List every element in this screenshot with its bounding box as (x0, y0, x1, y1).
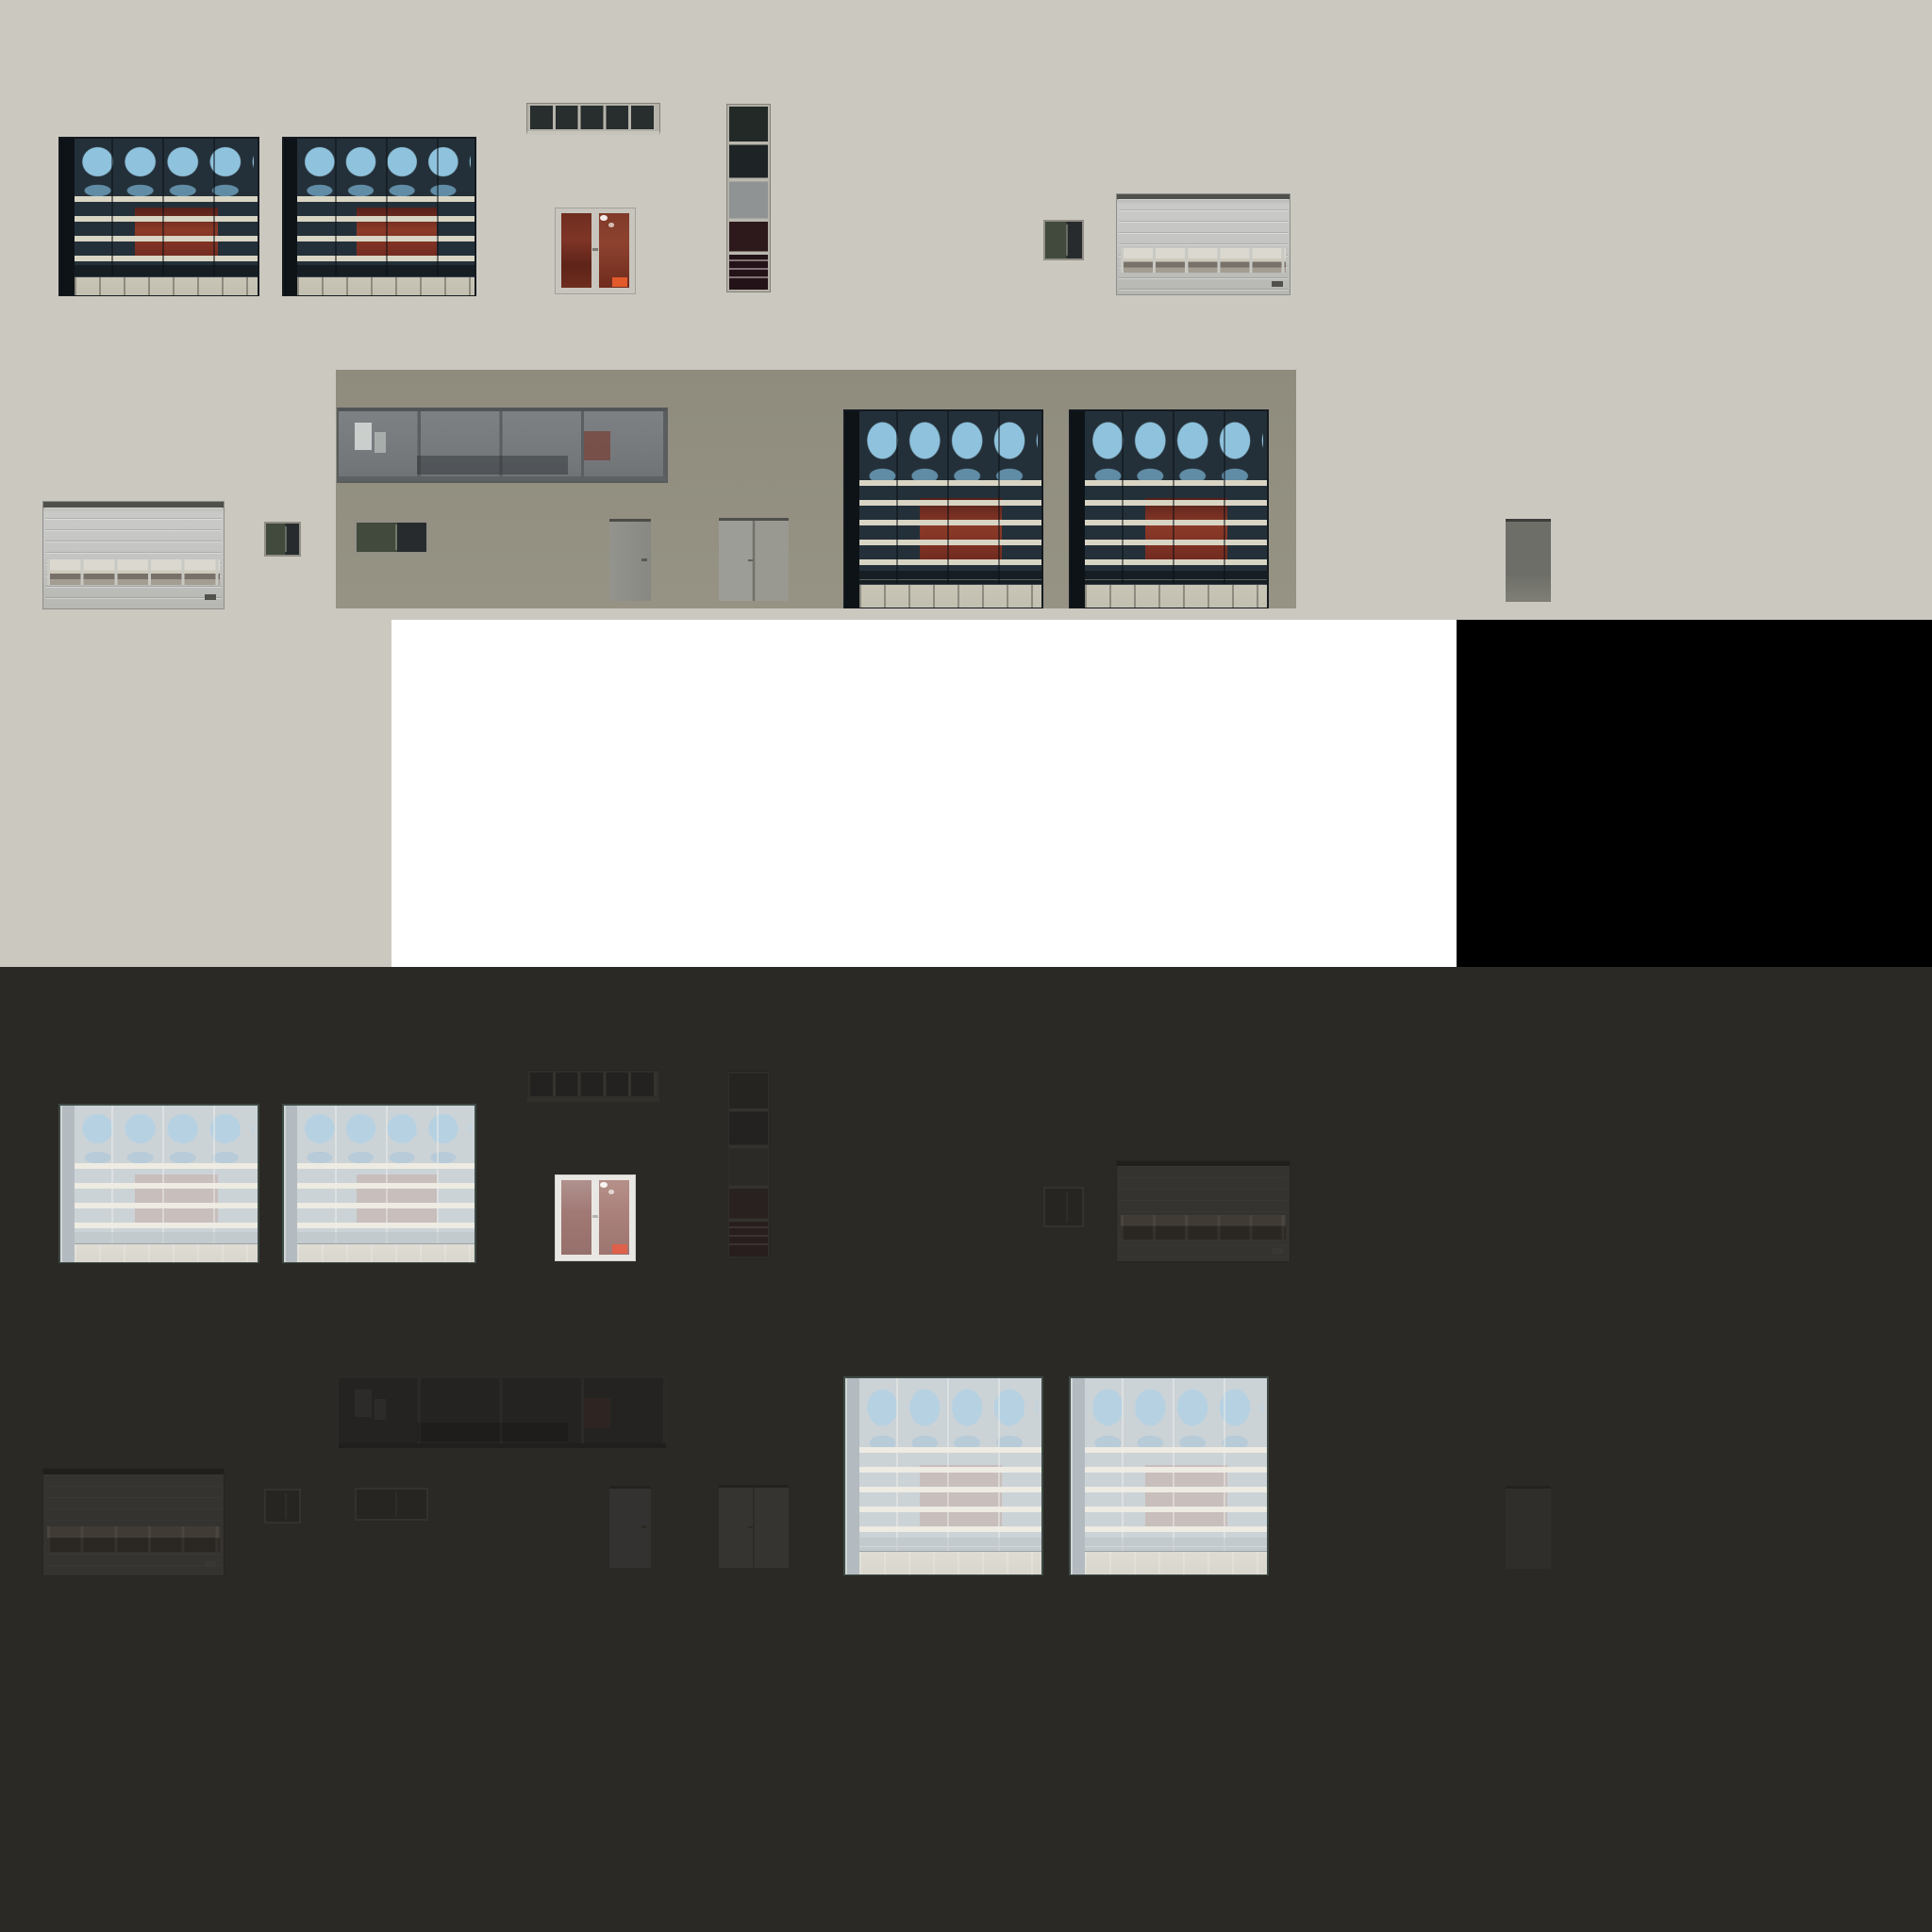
iw-bottom-layer (1085, 1551, 1267, 1574)
sectional-garage-door-1-night (1116, 1160, 1291, 1262)
office-window-band-night (337, 1374, 668, 1450)
rd-handle-layer (592, 1215, 599, 1218)
g-ridges-layer (45, 1474, 222, 1574)
office-window-band (337, 408, 668, 483)
dd-seam-layer (753, 521, 755, 601)
sw-line-layer (285, 1493, 287, 1520)
iw-band-layer (75, 265, 258, 276)
rd-orange-layer (612, 277, 628, 287)
sw-line-layer (395, 525, 397, 549)
curtain-wall-window-3 (843, 409, 1043, 608)
iw-bottom-layer (859, 1551, 1041, 1574)
red-glass-entrance-door-night (555, 1174, 636, 1261)
g-ridges-layer (1119, 199, 1288, 292)
iw-band-layer (297, 1232, 475, 1243)
vent-window-2-night (264, 1489, 301, 1524)
iw-band-layer (1085, 1538, 1267, 1552)
s-panes-layer (530, 1073, 657, 1096)
white-area (391, 620, 1457, 967)
rd-orange-layer (612, 1244, 628, 1254)
st-streaks-layer (729, 1226, 768, 1249)
iw-band-layer (859, 571, 1041, 585)
black-area (1457, 620, 1932, 967)
red-glass-entrance-door (555, 208, 636, 294)
dd-handle-layer (748, 1526, 752, 1529)
vent-window-1 (1043, 220, 1084, 260)
g-band-m-layer (47, 559, 220, 585)
rd-handle-layer (592, 248, 599, 251)
iw-bottom-layer (75, 276, 258, 295)
b-glare2-layer (375, 432, 386, 453)
rd-glare2-layer (608, 223, 614, 227)
sw-line-layer (285, 526, 287, 553)
texture-atlas-canvas (0, 0, 1932, 1932)
g-logo-layer (205, 1561, 216, 1567)
iw-band-layer (1085, 571, 1267, 585)
g-band-m-layer (47, 1526, 220, 1552)
g-band-m-layer (1121, 248, 1287, 272)
rd-left-layer (561, 1180, 591, 1254)
sw-line-layer (1066, 225, 1068, 256)
b-sill-layer (339, 1443, 666, 1448)
curtain-wall-window-4-night (1069, 1376, 1269, 1575)
s-panes-layer (530, 106, 657, 129)
b-glare2-layer (375, 1399, 386, 1420)
b-sill-layer (339, 476, 666, 481)
curtain-wall-window-1-night (58, 1104, 259, 1263)
curtain-wall-window-1 (58, 137, 259, 296)
rd-left-layer (561, 213, 591, 287)
vent-window-3 (355, 521, 428, 554)
clerestory-window-strip-night (526, 1070, 660, 1102)
service-door-single-night (609, 1486, 651, 1568)
d-handle-layer (641, 558, 646, 561)
stairwell-window-stack (726, 104, 771, 292)
service-door-single (609, 519, 651, 601)
g-logo-layer (1272, 1248, 1283, 1254)
stairwell-window-stack-night (726, 1071, 771, 1259)
sw-line-layer (1066, 1191, 1068, 1223)
b-red-layer (584, 1398, 610, 1427)
g-ridges-layer (1119, 1166, 1288, 1259)
clerestory-window-strip (526, 103, 660, 135)
vent-window-3-night (355, 1488, 428, 1521)
g-logo-layer (1272, 281, 1283, 287)
g-logo-layer (205, 594, 216, 600)
b-glare1-layer (355, 1390, 371, 1418)
curtain-wall-window-2-night (282, 1104, 476, 1263)
service-door-double-night (719, 1485, 789, 1568)
sectional-garage-door-2 (42, 501, 225, 609)
iw-bottom-layer (1085, 584, 1267, 608)
b-glare1-layer (355, 423, 371, 451)
sw-line-layer (395, 1491, 397, 1516)
b-dark-layer (417, 456, 568, 474)
iw-bottom-layer (297, 276, 475, 295)
sectional-garage-door-2-night (42, 1468, 225, 1576)
service-door-double (719, 518, 789, 601)
g-ridges-layer (45, 508, 222, 607)
iw-bottom-layer (297, 1243, 475, 1262)
iw-band-layer (297, 265, 475, 276)
curtain-wall-window-2 (282, 137, 476, 296)
iw-bottom-layer (75, 1243, 258, 1262)
narrow-door (1506, 519, 1551, 602)
d-handle-layer (641, 1525, 646, 1528)
sectional-garage-door-1 (1116, 193, 1291, 295)
narrow-door-night (1506, 1486, 1551, 1569)
g-band-m-layer (1121, 1215, 1287, 1239)
curtain-wall-window-4 (1069, 409, 1269, 608)
b-red-layer (584, 431, 610, 460)
st-streaks-layer (729, 259, 768, 282)
dd-seam-layer (753, 1488, 755, 1568)
dd-handle-layer (748, 559, 752, 562)
vent-window-1-night (1043, 1187, 1084, 1227)
vent-window-2 (264, 522, 301, 557)
iw-band-layer (859, 1538, 1041, 1552)
iw-bottom-layer (859, 584, 1041, 608)
curtain-wall-window-3-night (843, 1376, 1043, 1575)
iw-band-layer (75, 1232, 258, 1243)
b-dark-layer (417, 1423, 568, 1441)
rd-glare2-layer (608, 1190, 614, 1194)
